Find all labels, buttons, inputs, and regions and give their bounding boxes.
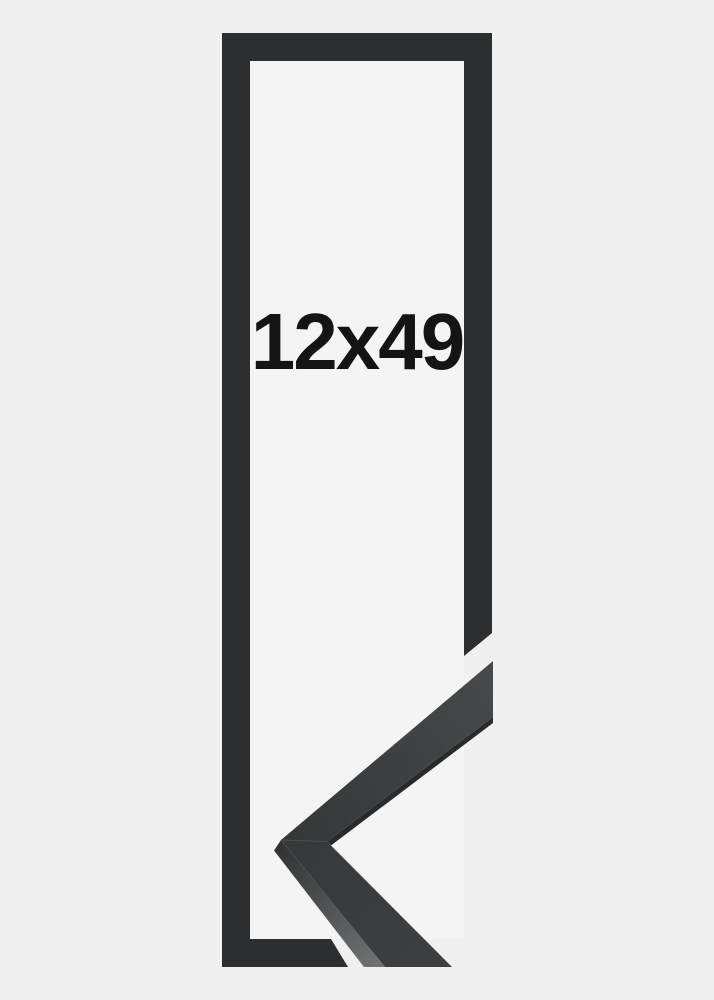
frame-bottom-bar [250,939,348,967]
product-image: 12x49 [0,0,714,1000]
frame-left-bar [222,33,250,967]
size-label: 12x49 [0,301,714,383]
frame-graphic [0,0,714,1000]
frame-top-bar [222,33,492,61]
